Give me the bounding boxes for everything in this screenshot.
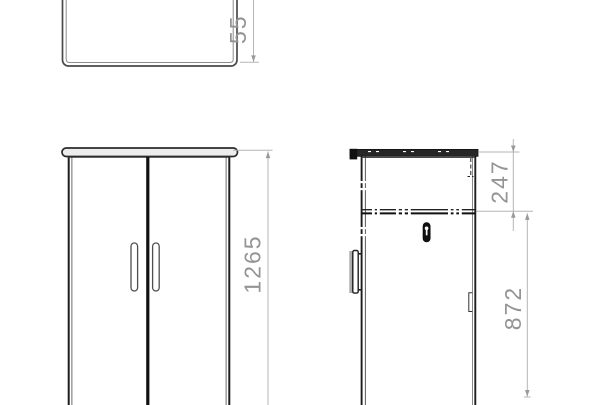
front-top-panel bbox=[62, 148, 238, 157]
side-view bbox=[349, 149, 478, 405]
arrowhead-up bbox=[511, 211, 516, 218]
upper-section-dimension: 247 bbox=[477, 139, 534, 231]
plan-outer-edge bbox=[63, 0, 238, 66]
upper-section-label: 247 bbox=[487, 159, 513, 203]
plan-depth-label: 55 bbox=[225, 14, 251, 44]
arrowhead-up bbox=[525, 213, 530, 220]
arrowhead-down bbox=[511, 146, 516, 153]
height-dimension: 1265 bbox=[233, 150, 273, 405]
side-handle bbox=[349, 251, 362, 294]
hidden-gap bbox=[360, 188, 366, 190]
hidden-gap bbox=[360, 234, 366, 236]
hidden-gap bbox=[360, 181, 366, 183]
height-label: 1265 bbox=[240, 234, 266, 293]
hidden-gap bbox=[360, 227, 366, 229]
technical-drawing-page: 55 1265 bbox=[0, 0, 605, 405]
keyhole-icon bbox=[423, 223, 430, 243]
arrowhead-down bbox=[525, 390, 530, 397]
door-handle-right bbox=[153, 243, 160, 291]
door-handle-left bbox=[131, 243, 138, 291]
arrowhead-up bbox=[266, 152, 271, 159]
side-top-panel bbox=[350, 149, 478, 156]
lower-section-dimension: 872 bbox=[500, 213, 531, 397]
side-top-panel-front-cap bbox=[350, 149, 358, 160]
lower-section-label: 872 bbox=[500, 286, 526, 330]
plan-view bbox=[63, 0, 238, 66]
technical-drawing-canvas: 55 1265 bbox=[0, 0, 605, 405]
arrowhead-down bbox=[251, 55, 256, 62]
front-view bbox=[62, 148, 238, 405]
side-handle-grip bbox=[353, 251, 358, 294]
back-edge-fitting bbox=[469, 293, 473, 312]
